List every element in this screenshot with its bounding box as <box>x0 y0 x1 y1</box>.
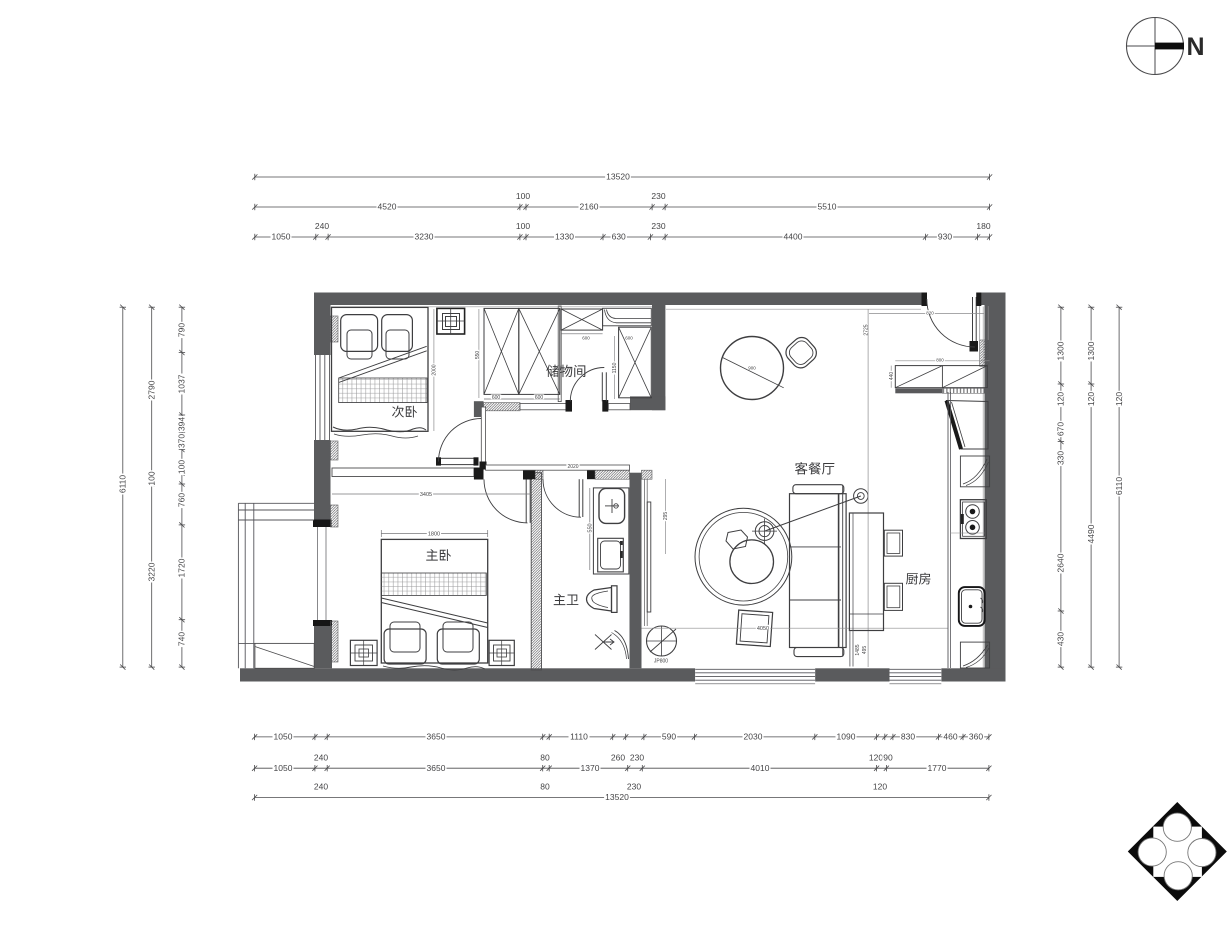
svg-text:4050: 4050 <box>757 626 769 632</box>
svg-text:670: 670 <box>1056 422 1066 436</box>
svg-text:830: 830 <box>901 732 915 742</box>
svg-text:430: 430 <box>1056 632 1066 646</box>
svg-text:4520: 4520 <box>378 202 397 212</box>
svg-text:330: 330 <box>1056 451 1066 465</box>
svg-text:13520: 13520 <box>605 792 629 802</box>
svg-text:360: 360 <box>969 732 983 742</box>
svg-text:2640: 2640 <box>1056 553 1066 572</box>
svg-text:180: 180 <box>976 221 990 231</box>
svg-text:3405: 3405 <box>420 492 432 498</box>
svg-text:6110: 6110 <box>1114 477 1124 496</box>
svg-text:760: 760 <box>177 493 187 507</box>
svg-text:230: 230 <box>651 191 665 201</box>
svg-text:N: N <box>1187 33 1205 61</box>
svg-text:100: 100 <box>177 460 187 474</box>
svg-text:550: 550 <box>588 523 594 532</box>
svg-text:260: 260 <box>611 752 625 762</box>
svg-text:4400: 4400 <box>784 232 803 242</box>
svg-text:1050: 1050 <box>274 732 293 742</box>
svg-text:230: 230 <box>651 221 665 231</box>
svg-text:820: 820 <box>926 310 934 315</box>
svg-text:5510: 5510 <box>818 202 837 212</box>
svg-text:600: 600 <box>625 335 633 340</box>
svg-text:394: 394 <box>177 417 187 431</box>
svg-text:3230: 3230 <box>415 232 434 242</box>
svg-text:1050: 1050 <box>274 763 293 773</box>
svg-text:13520: 13520 <box>606 172 630 182</box>
svg-text:495: 495 <box>862 646 868 655</box>
svg-text:1037: 1037 <box>177 374 187 393</box>
svg-text:1720: 1720 <box>177 558 187 577</box>
svg-text:230: 230 <box>627 782 641 792</box>
svg-text:1485: 1485 <box>855 644 861 655</box>
svg-text:80: 80 <box>540 782 550 792</box>
svg-text:1370: 1370 <box>581 763 600 773</box>
svg-text:4010: 4010 <box>751 763 770 773</box>
svg-text:1770: 1770 <box>928 763 947 773</box>
svg-text:2725: 2725 <box>864 324 870 335</box>
svg-text:1050: 1050 <box>272 232 291 242</box>
svg-text:90: 90 <box>883 752 893 762</box>
svg-text:100: 100 <box>516 191 530 201</box>
svg-text:900: 900 <box>748 365 756 370</box>
svg-text:120: 120 <box>1086 392 1096 406</box>
svg-text:1300: 1300 <box>1056 341 1066 360</box>
svg-text:80: 80 <box>540 752 550 762</box>
svg-text:120: 120 <box>1114 392 1124 406</box>
svg-text:600: 600 <box>535 395 544 401</box>
svg-text:2160: 2160 <box>580 202 599 212</box>
svg-text:100: 100 <box>516 221 530 231</box>
svg-text:370: 370 <box>177 434 187 448</box>
svg-text:3220: 3220 <box>146 562 156 581</box>
svg-text:2000: 2000 <box>432 364 438 375</box>
svg-text:2790: 2790 <box>146 380 156 399</box>
svg-text:590: 590 <box>662 732 676 742</box>
svg-text:790: 790 <box>177 323 187 337</box>
svg-text:240: 240 <box>314 752 328 762</box>
svg-text:600: 600 <box>582 335 590 340</box>
svg-text:1090: 1090 <box>837 732 856 742</box>
svg-text:600: 600 <box>492 395 501 401</box>
svg-text:630: 630 <box>612 232 626 242</box>
svg-text:240: 240 <box>315 221 329 231</box>
svg-text:120: 120 <box>1056 392 1066 406</box>
svg-text:1800: 1800 <box>428 531 440 537</box>
svg-text:1150: 1150 <box>612 362 618 373</box>
svg-text:3650: 3650 <box>427 763 446 773</box>
svg-text:1330: 1330 <box>555 232 574 242</box>
svg-text:930: 930 <box>938 232 952 242</box>
svg-text:3650: 3650 <box>427 732 446 742</box>
svg-text:295: 295 <box>663 512 669 521</box>
svg-text:JP800: JP800 <box>654 659 668 665</box>
svg-text:440: 440 <box>889 372 895 381</box>
svg-text:100: 100 <box>146 471 156 485</box>
svg-text:240: 240 <box>314 782 328 792</box>
svg-text:460: 460 <box>943 732 957 742</box>
svg-text:230: 230 <box>630 752 644 762</box>
svg-text:2020: 2020 <box>567 464 578 470</box>
svg-text:6110: 6110 <box>118 475 128 494</box>
svg-text:120: 120 <box>873 782 887 792</box>
svg-text:4490: 4490 <box>1086 524 1096 543</box>
svg-text:800: 800 <box>936 358 944 363</box>
svg-text:740: 740 <box>177 632 187 646</box>
svg-text:550: 550 <box>475 351 481 360</box>
svg-text:120: 120 <box>869 752 883 762</box>
svg-text:1110: 1110 <box>570 732 588 742</box>
svg-text:1300: 1300 <box>1086 341 1096 360</box>
svg-text:2030: 2030 <box>744 732 763 742</box>
